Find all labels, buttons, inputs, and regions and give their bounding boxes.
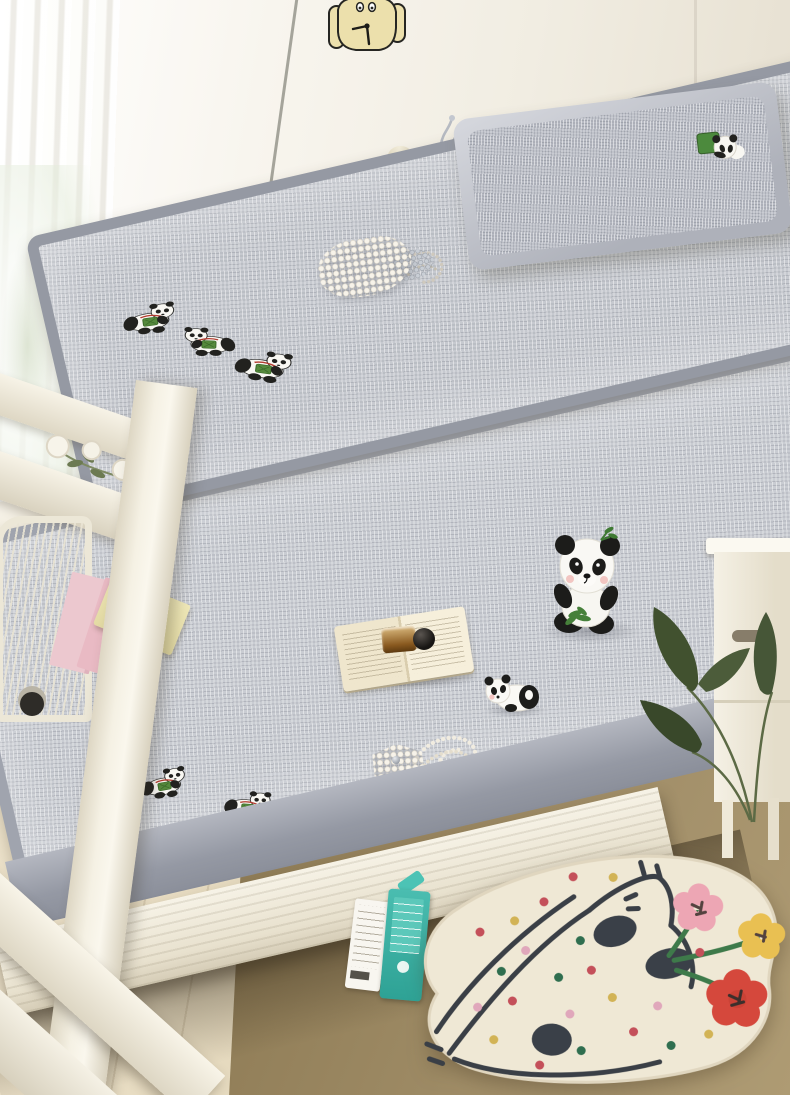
bunny-flower-rug xyxy=(401,841,790,1095)
pouch-clasp xyxy=(392,756,400,764)
panda-plush xyxy=(545,526,630,636)
care-label-barcode xyxy=(350,970,370,980)
panda-peek-embroidery-icon xyxy=(690,125,745,166)
potted-plant xyxy=(632,572,790,827)
cart-caster-wheel xyxy=(20,692,44,716)
care-label-text-lines xyxy=(351,905,385,970)
panda-figurine xyxy=(483,670,541,716)
bedroom-photo: Tencel xyxy=(0,0,790,1095)
perfume-bottle xyxy=(381,626,417,654)
dog-wall-clock xyxy=(324,0,410,62)
top-pillow-core xyxy=(466,95,778,256)
perfume-cap xyxy=(413,628,435,650)
panda-embroidery-icon xyxy=(177,325,238,359)
